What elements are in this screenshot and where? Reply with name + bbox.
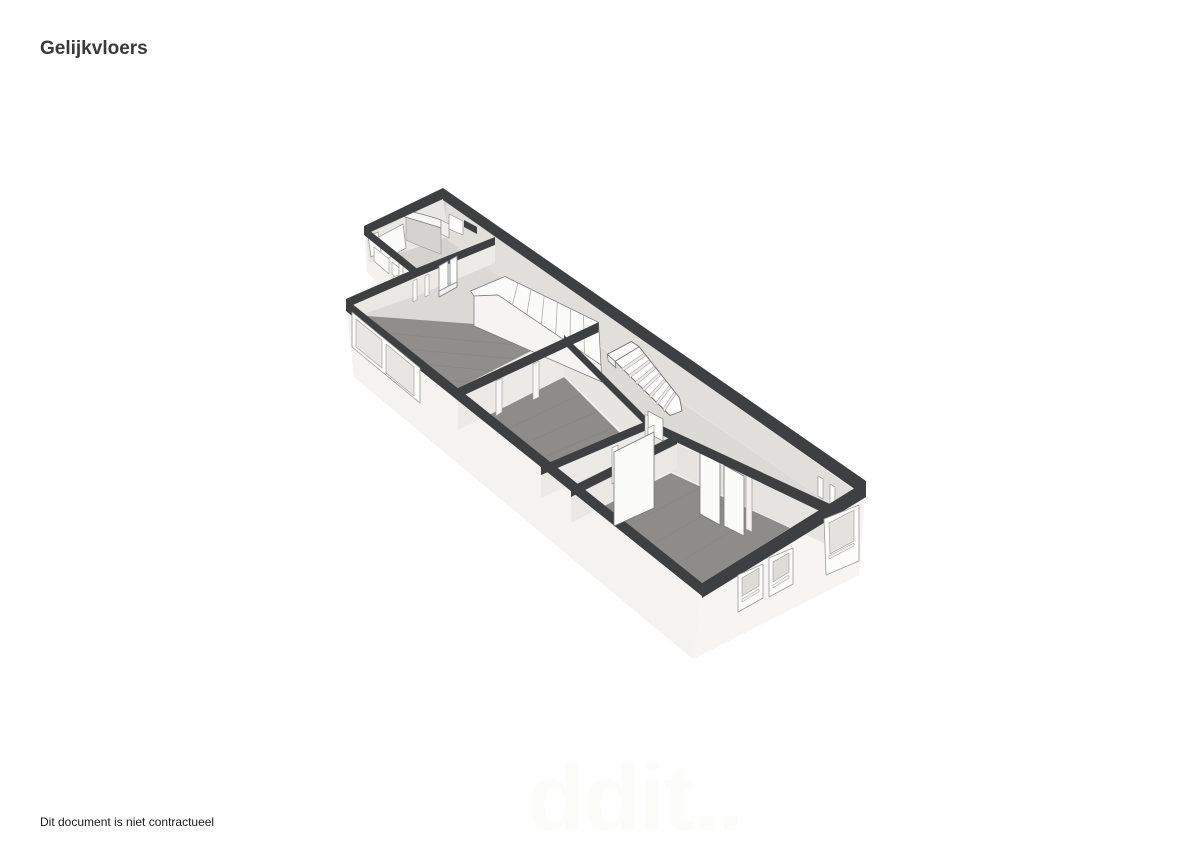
- svg-text:Dit document is niet contractu: Dit document is niet contractueel: [40, 815, 214, 829]
- svg-text:ddit..: ddit..: [527, 745, 742, 851]
- svg-text:Gelijkvloers: Gelijkvloers: [40, 38, 148, 59]
